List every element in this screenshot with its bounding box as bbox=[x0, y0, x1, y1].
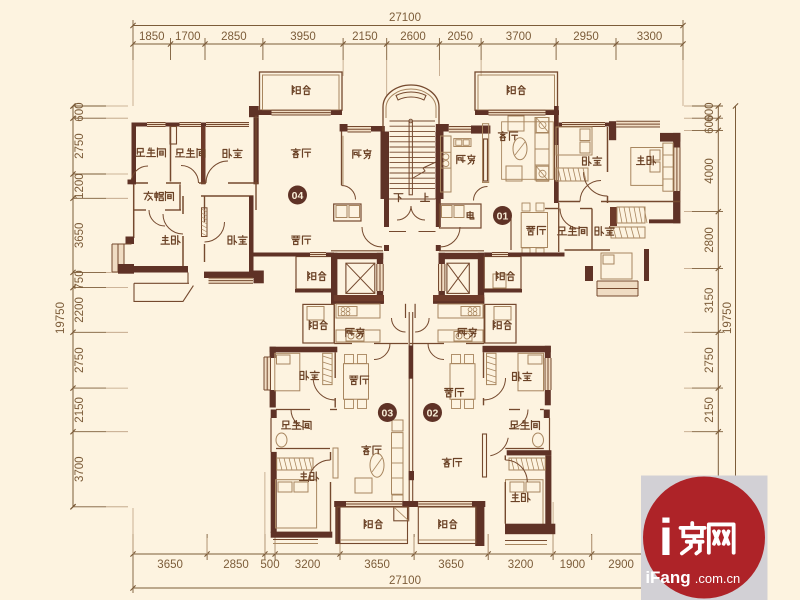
svg-text:2750: 2750 bbox=[74, 133, 86, 159]
svg-text:3150: 3150 bbox=[704, 288, 716, 314]
svg-text:3650: 3650 bbox=[438, 559, 464, 571]
svg-text:2150: 2150 bbox=[352, 31, 378, 43]
svg-text:3650: 3650 bbox=[364, 559, 390, 571]
svg-text:2800: 2800 bbox=[704, 227, 716, 253]
svg-text:iFang: iFang bbox=[645, 568, 690, 587]
svg-text:2600: 2600 bbox=[400, 31, 426, 43]
svg-text:01: 01 bbox=[497, 211, 509, 223]
svg-text:3300: 3300 bbox=[637, 31, 663, 43]
svg-text:2750: 2750 bbox=[74, 347, 86, 373]
svg-text:2150: 2150 bbox=[704, 397, 716, 423]
svg-text:19750: 19750 bbox=[55, 302, 67, 334]
svg-text:1850: 1850 bbox=[139, 31, 165, 43]
svg-text:1700: 1700 bbox=[175, 31, 201, 43]
svg-text:3650: 3650 bbox=[74, 223, 86, 249]
svg-text:03: 03 bbox=[382, 408, 394, 420]
svg-text:2150: 2150 bbox=[74, 397, 86, 423]
svg-text:3950: 3950 bbox=[290, 31, 316, 43]
svg-text:500: 500 bbox=[260, 559, 279, 571]
svg-text:2850: 2850 bbox=[221, 31, 247, 43]
svg-text:3200: 3200 bbox=[508, 559, 534, 571]
svg-text:4000: 4000 bbox=[704, 158, 716, 184]
svg-text:27100: 27100 bbox=[389, 12, 421, 24]
svg-text:3200: 3200 bbox=[295, 559, 321, 571]
svg-text:3700: 3700 bbox=[506, 31, 532, 43]
svg-text:27100: 27100 bbox=[389, 575, 421, 587]
svg-text:04: 04 bbox=[292, 190, 304, 202]
svg-text:2950: 2950 bbox=[573, 31, 599, 43]
svg-text:2050: 2050 bbox=[447, 31, 473, 43]
svg-text:750: 750 bbox=[74, 270, 86, 289]
svg-text:2900: 2900 bbox=[608, 559, 634, 571]
svg-text:02: 02 bbox=[427, 408, 439, 420]
svg-text:600: 600 bbox=[704, 115, 716, 134]
svg-text:2750: 2750 bbox=[704, 347, 716, 373]
svg-text:1200: 1200 bbox=[74, 173, 86, 199]
svg-text:2850: 2850 bbox=[223, 559, 249, 571]
svg-text:1900: 1900 bbox=[560, 559, 586, 571]
svg-text:3650: 3650 bbox=[157, 559, 183, 571]
svg-text:2200: 2200 bbox=[74, 297, 86, 323]
svg-text:19750: 19750 bbox=[722, 302, 734, 334]
svg-text:.com.cn: .com.cn bbox=[695, 571, 741, 586]
svg-text:i: i bbox=[659, 509, 673, 567]
svg-text:3700: 3700 bbox=[74, 456, 86, 482]
svg-text:600: 600 bbox=[74, 103, 86, 122]
